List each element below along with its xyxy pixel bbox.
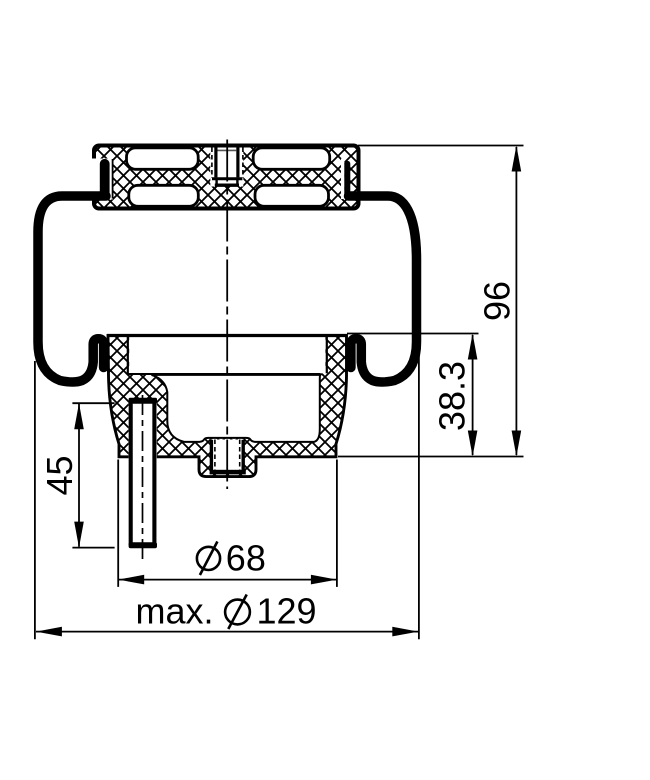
svg-text:129: 129 [257, 591, 317, 632]
svg-text:45: 45 [39, 455, 80, 495]
svg-text:38.3: 38.3 [432, 361, 473, 431]
svg-text:96: 96 [477, 281, 518, 321]
svg-text:68: 68 [226, 538, 266, 579]
svg-text:max.: max. [136, 591, 214, 632]
